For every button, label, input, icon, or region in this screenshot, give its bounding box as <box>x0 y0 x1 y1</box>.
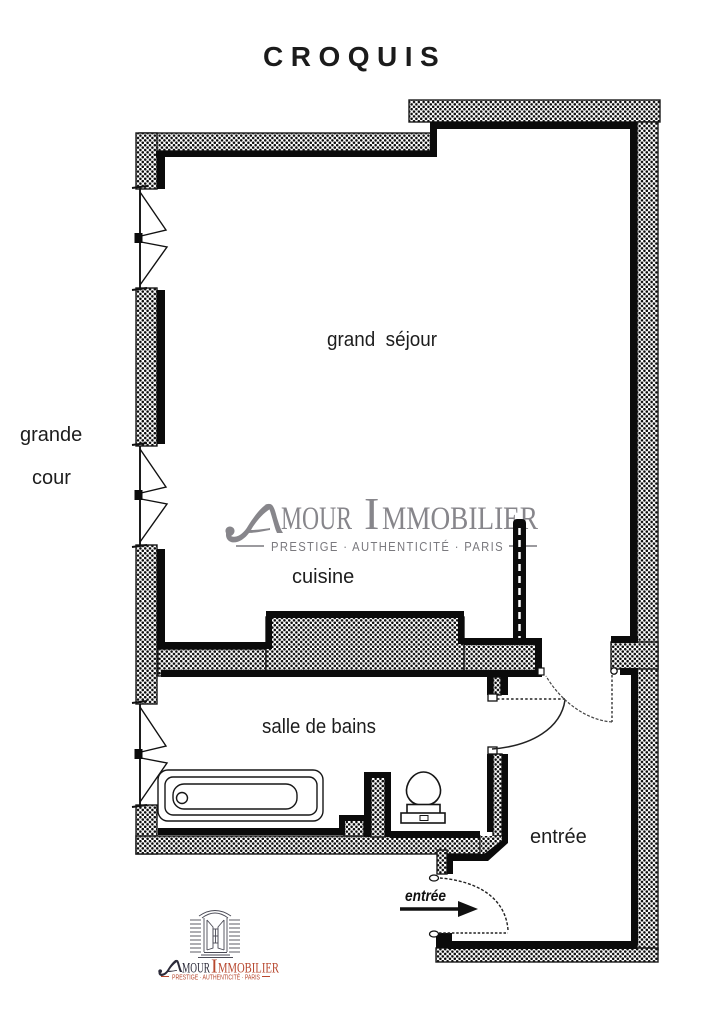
svg-text:PRESTIGE · AUTHENTICITÉ · PARI: PRESTIGE · AUTHENTICITÉ · PARIS <box>271 539 504 554</box>
svg-text:grande: grande <box>20 424 82 446</box>
svg-text:I: I <box>364 488 379 539</box>
svg-text:CROQUIS: CROQUIS <box>263 41 446 72</box>
svg-text:salle de bains: salle de bains <box>262 716 376 738</box>
svg-text:cour: cour <box>32 467 71 489</box>
svg-text:grand séjour: grand séjour <box>327 329 437 351</box>
svg-text:cuisine: cuisine <box>292 566 354 588</box>
svg-text:entrée: entrée <box>405 888 446 905</box>
svg-text:PRESTIGE · AUTHENTICITÉ · PARI: PRESTIGE · AUTHENTICITÉ · PARIS <box>172 973 260 982</box>
svg-text:MOUR: MOUR <box>281 501 352 537</box>
svg-text:entrée: entrée <box>530 826 587 848</box>
